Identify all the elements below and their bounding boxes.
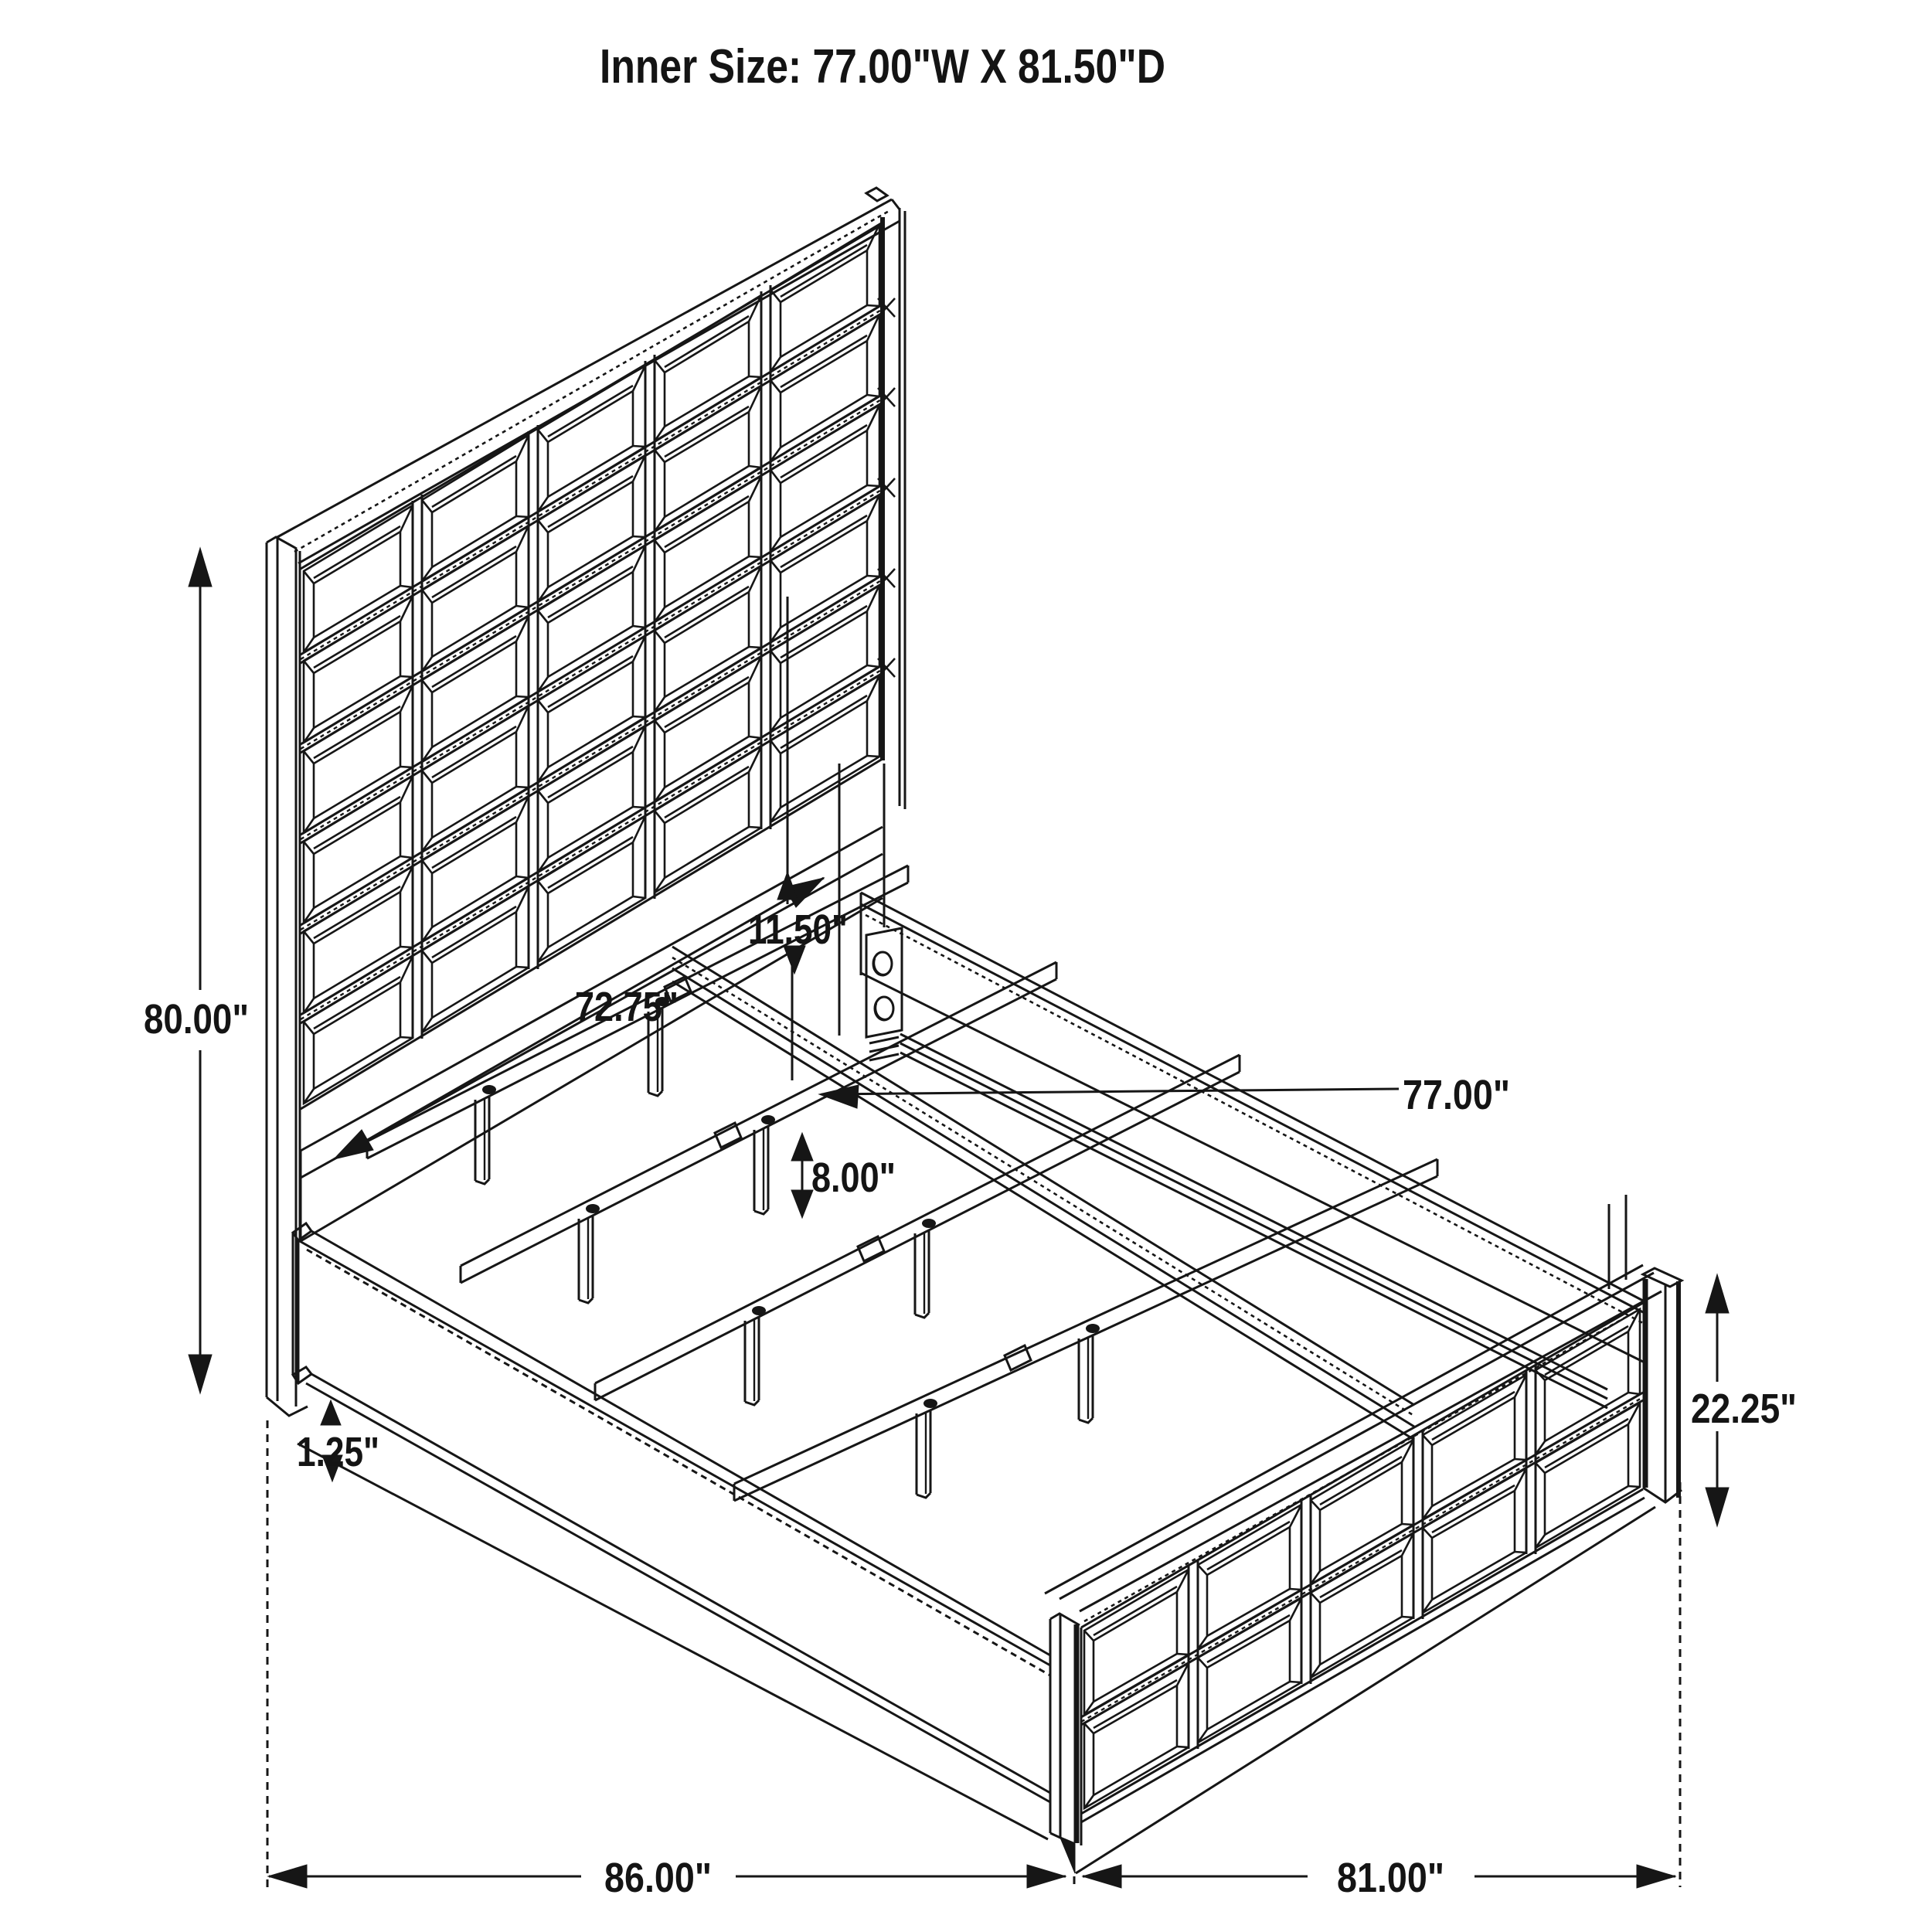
svg-text:81.00": 81.00" xyxy=(1337,1855,1444,1901)
svg-text:22.25": 22.25" xyxy=(1691,1386,1797,1432)
svg-text:11.50": 11.50" xyxy=(748,906,848,953)
svg-text:Inner Size: 77.00"W X 81.50"D: Inner Size: 77.00"W X 81.50"D xyxy=(600,40,1165,94)
svg-text:80.00": 80.00" xyxy=(144,996,249,1043)
svg-text:77.00": 77.00" xyxy=(1403,1072,1510,1118)
svg-text:1.25": 1.25" xyxy=(297,1429,379,1475)
svg-text:86.00": 86.00" xyxy=(604,1855,712,1901)
svg-text:8.00": 8.00" xyxy=(811,1155,896,1201)
